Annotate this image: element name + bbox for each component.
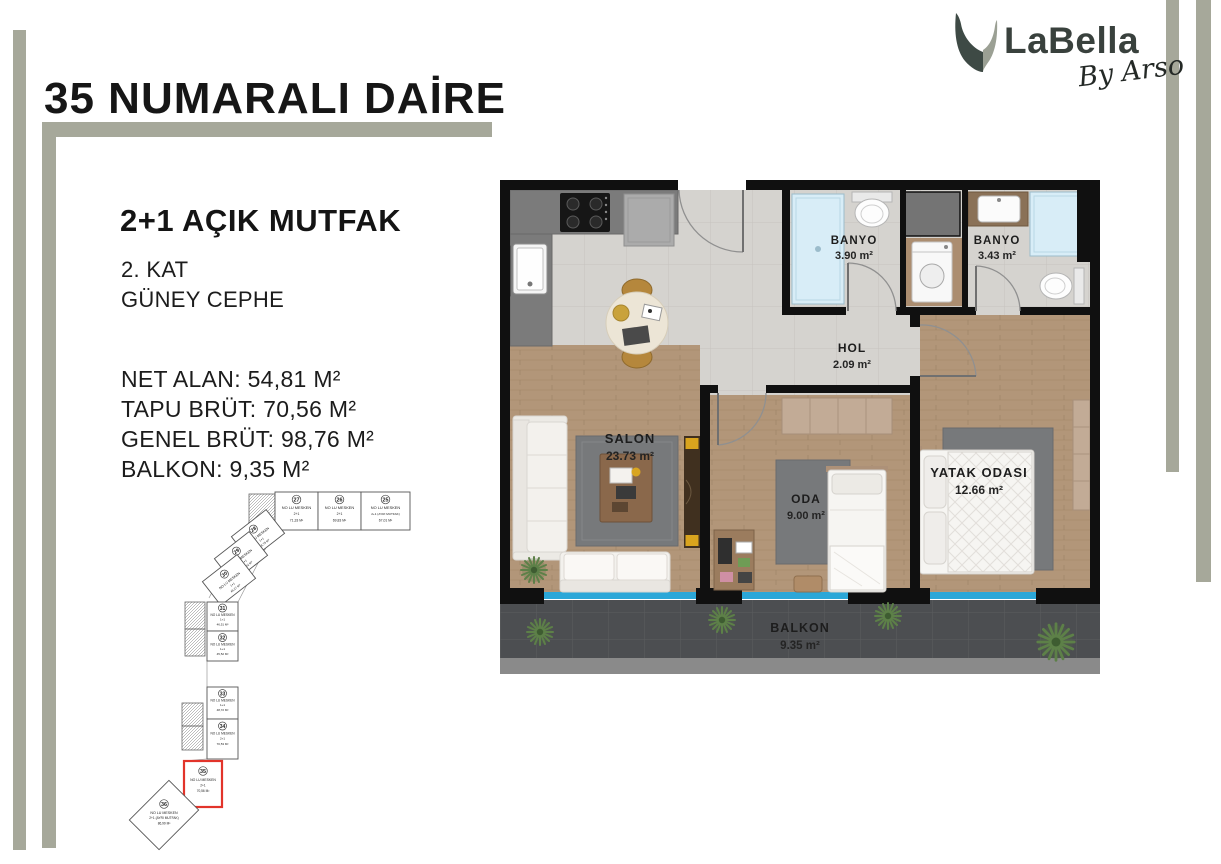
svg-text:NO LU MESKEN: NO LU MESKEN: [210, 643, 235, 647]
svg-text:70,56 M²: 70,56 M²: [197, 789, 210, 793]
site-key-plan: 27 NO LU MESKEN 2+1 71,33 M² 26 NO LU ME…: [103, 478, 433, 863]
kitchen-sink: [513, 244, 547, 294]
banyo1-label: BANYO: [831, 235, 878, 247]
svg-text:1+1: 1+1: [220, 647, 225, 651]
labella-tulip-icon: [952, 12, 1000, 76]
apartment-facade: GÜNEY CEPHE: [121, 287, 284, 313]
banyo1-area-label: 3.90 m²: [835, 250, 873, 262]
stove-icon: [560, 193, 610, 232]
balkon-label: BALKON: [770, 621, 829, 635]
oda-area-label: 9.00 m²: [787, 510, 825, 522]
general-gross-line: GENEL BRÜT: 98,76 M²: [121, 426, 374, 453]
desk: [714, 530, 754, 590]
svg-text:NO LU MESKEN: NO LU MESKEN: [371, 505, 401, 510]
unit-34: 34 NO LU MESKEN 2+1 70,53 M²: [207, 719, 238, 759]
banyo2-label: BANYO: [974, 235, 1021, 247]
hol-area-label: 2.09 m²: [833, 359, 871, 371]
svg-text:2+1: 2+1: [220, 737, 225, 741]
yatak-area-label: 12.66 m²: [955, 483, 1003, 497]
svg-text:34: 34: [220, 724, 226, 730]
fridge: [624, 194, 674, 246]
svg-text:26: 26: [337, 497, 343, 503]
laundry-niche: [906, 238, 962, 306]
svg-text:NO LU MESKEN: NO LU MESKEN: [210, 732, 235, 736]
hol-label: HOL: [838, 341, 866, 355]
svg-text:46,51 M²: 46,51 M²: [217, 623, 229, 627]
shaft: [904, 192, 960, 236]
svg-text:2+1 (AYRI MUTFAK): 2+1 (AYRI MUTFAK): [371, 512, 400, 516]
tapu-gross-line: TAPU BRÜT: 70,56 M²: [121, 396, 356, 423]
svg-text:1+1: 1+1: [220, 618, 225, 622]
svg-text:32: 32: [220, 635, 226, 641]
balcony-plant: [709, 607, 735, 633]
svg-text:70,53 M²: 70,53 M²: [217, 742, 229, 746]
svg-text:NO LU MESKEN: NO LU MESKEN: [150, 811, 178, 815]
oda-closet: [782, 398, 892, 434]
svg-text:25: 25: [383, 497, 389, 503]
unit-25: 25 NO LU MESKEN 2+1 (AYRI MUTFAK) 67,01 …: [361, 492, 410, 530]
svg-text:67,01 M²: 67,01 M²: [379, 519, 393, 523]
oda-label: ODA: [791, 492, 821, 506]
svg-text:2+1: 2+1: [200, 783, 206, 787]
svg-text:36: 36: [161, 802, 167, 808]
apartment-type: 2+1 AÇIK MUTFAK: [120, 203, 401, 239]
svg-text:NO LU MESKEN: NO LU MESKEN: [210, 613, 235, 617]
svg-text:NO LU MESKEN: NO LU MESKEN: [210, 699, 235, 703]
svg-text:2+1: 2+1: [294, 512, 300, 516]
svg-text:35: 35: [200, 769, 206, 775]
tv-unit: [684, 436, 700, 548]
unit-32: 32 NO LU MESKEN 1+1 45,52 M²: [207, 631, 238, 661]
svg-text:48,72 M²: 48,72 M²: [217, 708, 229, 712]
washbasin: [968, 192, 1028, 226]
balcony-plant: [527, 619, 553, 645]
salon-label: SALON: [605, 431, 656, 446]
svg-text:2+1: 2+1: [337, 512, 343, 516]
svg-text:33: 33: [220, 691, 226, 697]
unit-31: 31 NO LU MESKEN 1+1 46,51 M²: [207, 602, 238, 631]
svg-text:27: 27: [294, 497, 300, 503]
banyo2-area-label: 3.43 m²: [978, 250, 1016, 262]
unit-33: 33 NO LU MESKEN 1+1 48,72 M²: [207, 687, 238, 719]
salon-plant: [521, 557, 547, 583]
svg-text:71,33 M²: 71,33 M²: [290, 519, 304, 523]
sofa: [560, 552, 670, 592]
balcony-plant: [875, 603, 901, 629]
stool: [794, 576, 822, 592]
left-outer-bar: [13, 30, 26, 850]
unit-26: 26 NO LU MESKEN 2+1 69,83 M²: [318, 492, 361, 530]
balcony-outer-wall: [500, 658, 1100, 674]
svg-text:NO LU MESKEN: NO LU MESKEN: [190, 778, 216, 782]
svg-text:1+1: 1+1: [220, 703, 225, 707]
left-inner-bar: [42, 122, 56, 848]
floor-plan: SALON 23.73 m² ODA 9.00 m² YATAK ODASI 1…: [500, 180, 1100, 677]
unit-35-selected: 35 NO LU MESKEN 2+1 70,56 M²: [184, 761, 222, 807]
coffee-table: [600, 454, 652, 522]
balcony-plant: [1038, 624, 1074, 660]
apartment-floor: 2. KAT: [121, 257, 188, 283]
right-outer-bar: [1196, 0, 1211, 582]
yatak-label: YATAK ODASI: [930, 465, 1027, 480]
svg-text:2+1 (AYRI MUTFAK): 2+1 (AYRI MUTFAK): [149, 816, 178, 820]
svg-text:31: 31: [220, 606, 226, 612]
svg-text:NO LU MESKEN: NO LU MESKEN: [325, 505, 355, 510]
yatak-closet: [1073, 400, 1090, 510]
svg-text:NO LU MESKEN: NO LU MESKEN: [282, 505, 312, 510]
brand-name: LaBella: [1004, 20, 1139, 62]
net-area-line: NET ALAN: 54,81 M²: [121, 366, 341, 393]
brochure-page: 35 NUMARALI DAİRE LaBella By Arso 2+1 AÇ…: [0, 0, 1221, 864]
title-underline-bar: [42, 122, 492, 137]
single-bed: [826, 466, 888, 592]
entrance-opening: [678, 180, 746, 190]
salon-area-label: 23.73 m²: [606, 449, 654, 463]
svg-text:86,99 M²: 86,99 M²: [158, 822, 171, 826]
unit-27: 27 NO LU MESKEN 2+1 71,33 M²: [275, 492, 318, 530]
svg-text:45,52 M²: 45,52 M²: [217, 652, 229, 656]
balcony-glass-railing: [510, 592, 1090, 599]
page-title: 35 NUMARALI DAİRE: [44, 74, 506, 124]
svg-text:69,83 M²: 69,83 M²: [333, 519, 347, 523]
corner-sofa: [513, 416, 567, 560]
balkon-area-label: 9.35 m²: [780, 640, 820, 652]
shower-1: [792, 194, 844, 304]
